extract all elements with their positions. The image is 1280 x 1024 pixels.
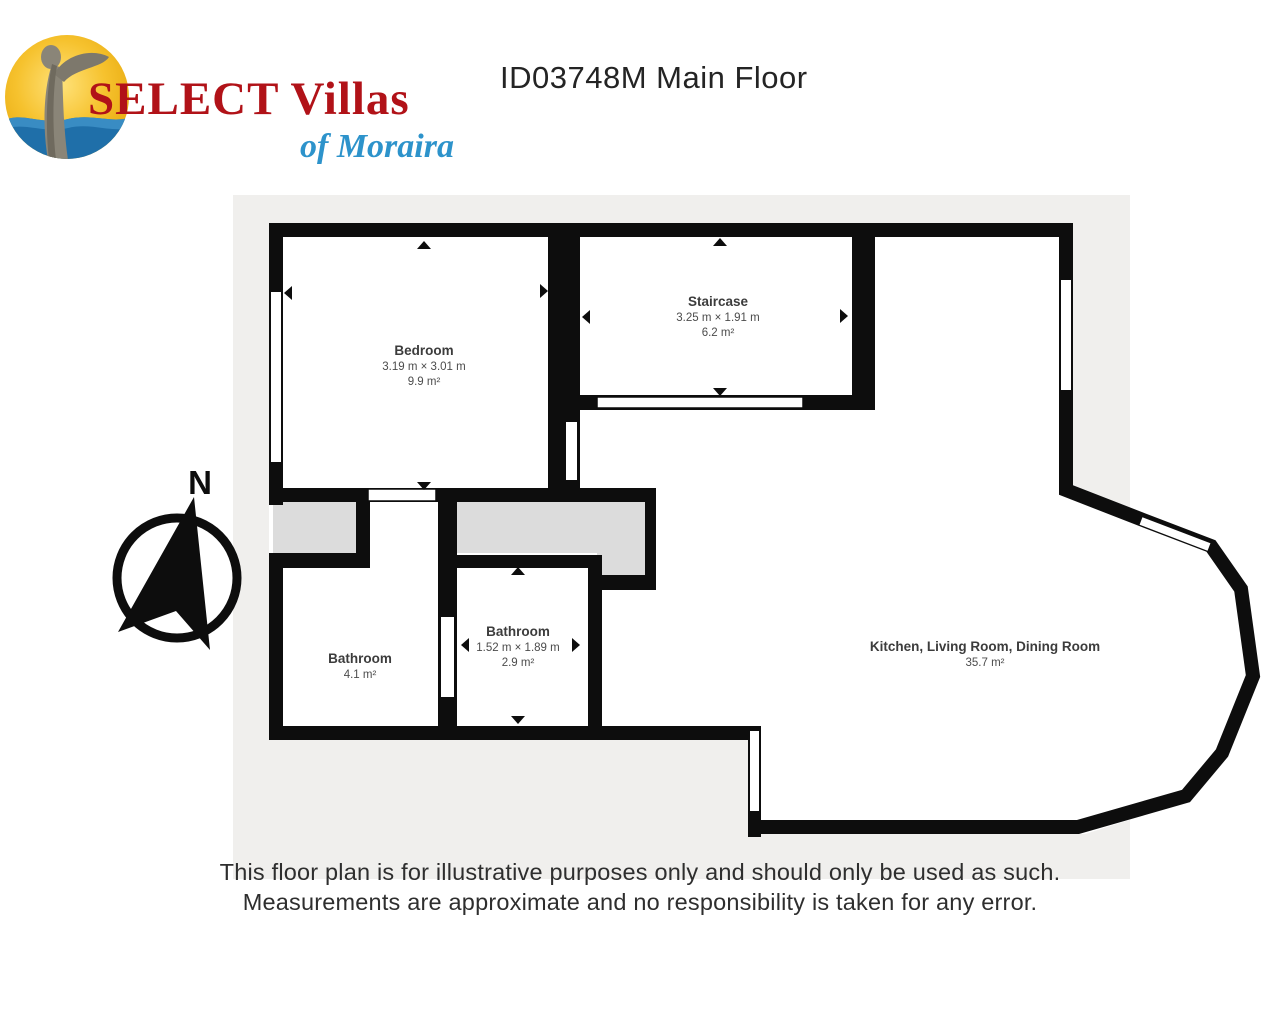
room-area: 2.9 m² (476, 656, 559, 671)
room-dimensions: 3.25 m × 1.91 m (676, 311, 759, 326)
room-name: Bathroom (476, 624, 559, 639)
room-label-bathroom-right: Bathroom 1.52 m × 1.89 m 2.9 m² (476, 624, 559, 671)
room-area: 4.1 m² (328, 668, 392, 683)
room-name: Kitchen, Living Room, Dining Room (870, 639, 1100, 654)
room-label-bedroom: Bedroom 3.19 m × 3.01 m 9.9 m² (382, 343, 465, 390)
disclaimer-line-2: Measurements are approximate and no resp… (0, 887, 1280, 917)
disclaimer-line-1: This floor plan is for illustrative purp… (0, 857, 1280, 887)
kitchen-window (749, 730, 760, 812)
bedroom-door-opening (368, 489, 436, 501)
compass (117, 497, 237, 650)
room-area: 6.2 m² (676, 326, 759, 341)
room-name: Staircase (676, 294, 759, 309)
hall-area-left (273, 502, 358, 553)
room-label-kitchen-living-dining: Kitchen, Living Room, Dining Room 35.7 m… (870, 639, 1100, 671)
bathroom-door (440, 616, 455, 698)
staircase-opening (597, 397, 803, 408)
page: { "header": { "brand": "SELECT Villas", … (0, 0, 1280, 1024)
room-label-bathroom-left: Bathroom 4.1 m² (328, 651, 392, 683)
disclaimer: This floor plan is for illustrative purp… (0, 857, 1280, 917)
room-label-staircase: Staircase 3.25 m × 1.91 m 6.2 m² (676, 294, 759, 341)
room-name: Bedroom (382, 343, 465, 358)
hall-door (565, 421, 578, 481)
living-window (1060, 279, 1072, 391)
room-area: 35.7 m² (870, 656, 1100, 671)
room-dimensions: 1.52 m × 1.89 m (476, 641, 559, 656)
room-area: 9.9 m² (382, 375, 465, 390)
room-dimensions: 3.19 m × 3.01 m (382, 360, 465, 375)
compass-north-label: N (183, 464, 217, 502)
bedroom-window (270, 291, 282, 463)
room-name: Bathroom (328, 651, 392, 666)
